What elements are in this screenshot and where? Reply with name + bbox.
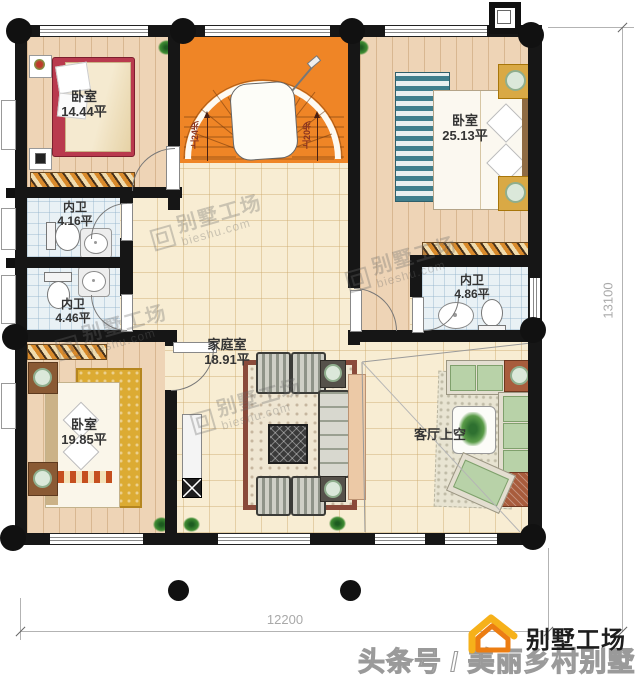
label-bedroom-bl: 卧室 19.85平	[44, 417, 124, 447]
label-bath-right: 内卫 4.86平	[432, 273, 512, 301]
dim-width-label: 12200	[240, 612, 330, 627]
dim-height-label: 13100	[601, 263, 616, 339]
wall-nub-2	[6, 258, 15, 268]
room-name: 内卫	[35, 200, 115, 214]
room-name: 卧室	[44, 89, 124, 104]
label-family-room: 家庭室 18.91平	[185, 337, 269, 367]
window-bath-right-wall	[529, 278, 541, 318]
toilet-bath-right	[481, 299, 503, 327]
footer-logo-text: 别墅工场	[526, 620, 626, 655]
plant-bottom-3	[329, 516, 346, 531]
tv-box	[182, 478, 202, 498]
dim-line-right	[622, 27, 623, 632]
plant-pot-tr-bottom	[505, 182, 526, 203]
sofa-family-right	[318, 390, 350, 478]
room-area: 18.91平	[185, 352, 269, 367]
wall-bedroom-bl-right-b	[165, 390, 177, 533]
room-name: 卧室	[44, 417, 124, 432]
label-bath2: 内卫 4.46平	[33, 297, 113, 325]
room-area: 4.86平	[432, 287, 512, 301]
window-living-bottom-2	[445, 533, 497, 545]
drain-bath2	[92, 279, 95, 282]
exterior-unit-3	[1, 275, 16, 324]
window-bedroom-tl-top	[40, 25, 148, 37]
wall-left	[15, 25, 27, 545]
label-bath1: 内卫 4.16平	[35, 200, 115, 228]
drain-bath1	[94, 241, 97, 244]
column-top-mid-left	[170, 18, 196, 44]
window-living-bottom-1	[375, 533, 425, 545]
wall-bedroom-tl-right-a	[168, 25, 180, 148]
room-name: 家庭室	[185, 337, 269, 352]
coffee-table-family	[268, 424, 308, 464]
dim-ext-bottom-left	[20, 598, 21, 640]
exterior-unit-1	[1, 100, 16, 150]
column-right-mid	[520, 317, 546, 343]
stair-up-right-label: 上20步	[300, 108, 314, 162]
plant-family-bottom	[324, 480, 342, 498]
villa-factory-logo-icon	[464, 614, 524, 654]
window-stairs-top	[205, 25, 330, 37]
armchair-family-bottom-left	[256, 476, 291, 516]
column-top-mid-right	[339, 18, 365, 44]
room-area: 14.44平	[44, 104, 124, 119]
wall-nub-1	[6, 188, 15, 198]
plant-pot-tr-top	[505, 70, 526, 91]
column-bottom-right	[520, 524, 546, 550]
stair-arrow-right-line	[317, 117, 318, 161]
chimney	[489, 2, 521, 34]
wall-baths-right-b	[120, 238, 133, 296]
wall-bath-right-top	[410, 255, 528, 267]
wardrobe-bedroom-bl	[27, 344, 107, 360]
room-area: 25.13平	[425, 128, 505, 143]
lamp-icon	[35, 153, 46, 164]
plant-pot-bl-top	[33, 368, 52, 387]
window-bedroom-bl-bottom	[50, 533, 143, 545]
plant-family-top	[324, 364, 342, 382]
plant-pot-bl-bottom	[33, 469, 52, 488]
exterior-unit-4	[1, 383, 16, 429]
label-bedroom-tr: 卧室 25.13平	[425, 113, 505, 143]
room-name: 内卫	[432, 273, 512, 287]
exterior-unit-2	[1, 208, 16, 250]
tv-cabinet-family	[182, 414, 202, 480]
door-leaf-bath-right	[412, 297, 424, 333]
room-name: 客厅上空	[400, 427, 480, 442]
room-name: 内卫	[33, 297, 113, 311]
floor-plan-page: 上24步 上20步	[0, 0, 640, 676]
column-top-right	[518, 22, 544, 48]
label-living-void: 客厅上空	[400, 427, 480, 442]
window-bedroom-tr-top	[385, 25, 487, 37]
stair-up-left-label: 上24步	[188, 108, 202, 162]
room-name: 卧室	[425, 113, 505, 128]
column-left-mid	[2, 324, 28, 350]
stair-arrow-left-line	[207, 117, 208, 161]
flower-vase	[34, 59, 45, 70]
wall-bedroom-bl-top	[15, 330, 177, 342]
porch-column-right	[340, 580, 361, 601]
room-area: 4.46平	[33, 311, 113, 325]
column-bottom-left	[0, 525, 26, 551]
window-family-bottom	[218, 533, 310, 545]
wall-baths-divider	[15, 257, 120, 268]
porch-column-left	[168, 580, 189, 601]
spiral-staircase	[180, 37, 348, 163]
plant-bottom-2	[183, 517, 200, 532]
column-top-left	[6, 18, 32, 44]
room-area: 4.16平	[35, 214, 115, 228]
wall-bedroom-tr-left-a	[348, 25, 360, 288]
label-bedroom-tl: 卧室 14.44平	[44, 89, 124, 119]
room-area: 19.85平	[44, 432, 124, 447]
